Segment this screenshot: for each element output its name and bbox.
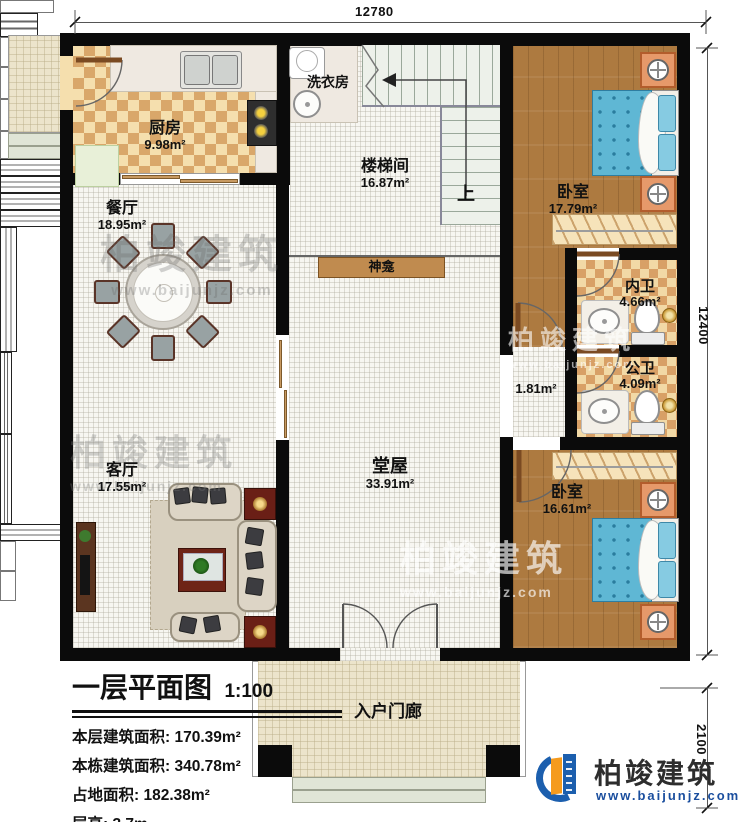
plan-title: 一层平面图 — [72, 672, 212, 703]
tv — [80, 555, 90, 595]
wall-stub — [565, 248, 577, 260]
dimension-line-right — [707, 48, 708, 655]
wardrobe-top — [552, 214, 677, 245]
sofa-pillow — [245, 527, 265, 547]
stove-burner — [254, 106, 268, 120]
dimension-line-top — [75, 22, 706, 23]
stairs-up-label: 上 — [452, 184, 480, 205]
kitchen-sink-basin — [212, 55, 238, 85]
stair-flight-right — [440, 107, 500, 225]
entry-door-opening — [340, 648, 440, 661]
plant — [79, 530, 91, 542]
wall-bedroom-top-bottom — [619, 248, 677, 260]
room-label-kitchen: 厨房 9.98m² — [110, 120, 220, 153]
watermark-site: www.baijunjz.com — [400, 584, 568, 600]
stat-story-height: 层高: 3.7m — [72, 812, 342, 822]
logo-building-orange — [551, 757, 562, 795]
watermark: 柏竣建筑 www.baijunjz.com — [400, 530, 568, 600]
nightstand — [640, 604, 676, 640]
company-logo: 柏竣建筑 www.baijunjz.com — [536, 748, 746, 810]
stat-floor-area: 本层建筑面积: 170.39m² — [72, 725, 342, 747]
floor-plan-canvas: 12780 12400 2100 — [0, 0, 750, 822]
window-inner-bath — [0, 352, 12, 434]
public-bath-sink — [588, 398, 620, 424]
dining-hall-opening — [276, 335, 289, 440]
plan-scale: 1:100 — [224, 681, 273, 702]
title-rule-thick — [72, 710, 342, 713]
sofa-pillow — [245, 551, 264, 570]
sliding-panel — [284, 390, 287, 438]
kitchen-sink-basin — [184, 55, 210, 85]
stat-building-area: 本栋建筑面积: 340.78m² — [72, 754, 342, 776]
nightstand — [640, 482, 676, 518]
dining-chair — [185, 314, 220, 349]
floor-drain — [662, 398, 677, 413]
stair-flight-top — [362, 45, 500, 107]
nightstand — [640, 176, 676, 212]
sofa-pillow — [245, 577, 264, 596]
inner-bath-toilet-tank — [631, 332, 665, 345]
window-public-bath — [0, 434, 12, 524]
logo-building-blue — [563, 754, 576, 794]
logo-mark-icon — [536, 752, 588, 804]
room-label-hall: 堂屋 33.91m² — [335, 456, 445, 492]
laundry-sink — [293, 90, 321, 118]
side-landing — [8, 35, 62, 133]
logo-brand-text: 柏竣建筑 — [594, 752, 718, 792]
kitchen-sliding-panel — [180, 179, 238, 183]
coffee-table-plant — [193, 558, 209, 574]
wall-left — [60, 33, 73, 661]
wall-hall-right-upper — [500, 45, 513, 355]
nightstand — [640, 52, 676, 88]
public-bath-toilet — [634, 390, 660, 424]
room-label-bedroom-bottom: 卧室 16.61m² — [512, 484, 622, 517]
bed-pillow — [658, 95, 676, 132]
side-step-edge — [0, 0, 54, 13]
porch-pillar-base — [0, 571, 16, 601]
room-label-living: 客厅 17.55m² — [62, 462, 182, 495]
stat-footprint-area: 占地面积: 182.38m² — [72, 783, 342, 805]
porch-pillar-right — [486, 745, 520, 777]
room-label-laundry: 洗衣房 — [296, 74, 360, 90]
wall-hall-left-lower — [276, 440, 289, 648]
room-label-corridor: 1.81m² — [500, 382, 572, 397]
bed-pillow — [658, 134, 676, 171]
title-rule-thin — [72, 716, 342, 718]
stove-burner — [254, 124, 268, 138]
shrine-label: 神龛 — [319, 258, 444, 276]
sofa-pillow — [203, 615, 222, 634]
sofa-pillow — [179, 616, 198, 635]
watermark: 柏竣建筑 www.baijunjz.com — [100, 222, 284, 299]
logo-site-text: www.baijunjz.com — [596, 788, 740, 803]
side-table — [244, 616, 276, 648]
dimension-top-value: 12780 — [355, 4, 394, 19]
room-label-inner-bath: 内卫 4.66m² — [595, 278, 685, 310]
wardrobe-bottom — [552, 452, 677, 480]
wall-bedroom-bottom-top — [560, 437, 677, 450]
room-label-public-bath: 公卫 4.09m² — [595, 360, 685, 392]
floor-drain — [662, 308, 677, 323]
side-step — [8, 133, 62, 146]
room-label-dining: 餐厅 18.95m² — [62, 200, 182, 233]
window-top-left — [0, 13, 38, 37]
side-table — [244, 488, 276, 520]
room-label-stairwell: 楼梯间 16.87m² — [330, 158, 440, 191]
shrine-shelf: 神龛 — [318, 257, 445, 278]
watermark-site: www.baijunjz.com — [100, 282, 284, 299]
dimension-right-value: 12400 — [696, 306, 711, 345]
bed-pillow — [658, 561, 676, 598]
sliding-panel — [279, 340, 282, 388]
title-block: 一层平面图 1:100 本层建筑面积: 170.39m² 本栋建筑面积: 340… — [72, 666, 342, 822]
bed-pillow — [658, 522, 676, 559]
side-step — [8, 146, 62, 159]
kitchen-sliding-panel — [122, 175, 180, 179]
watermark-brand: 柏竣建筑 — [508, 320, 636, 357]
dining-chair — [151, 335, 175, 361]
public-bath-toilet-tank — [631, 422, 665, 435]
room-label-bedroom-top: 卧室 17.79m² — [518, 184, 628, 217]
washing-machine-drum — [296, 50, 318, 72]
window-dining — [0, 227, 17, 352]
wall-kitchen-bottom-right — [240, 173, 290, 185]
kitchen-door-opening — [60, 56, 73, 110]
porch-pillar-base — [0, 541, 16, 571]
watermark-brand: 柏竣建筑 — [400, 530, 568, 582]
